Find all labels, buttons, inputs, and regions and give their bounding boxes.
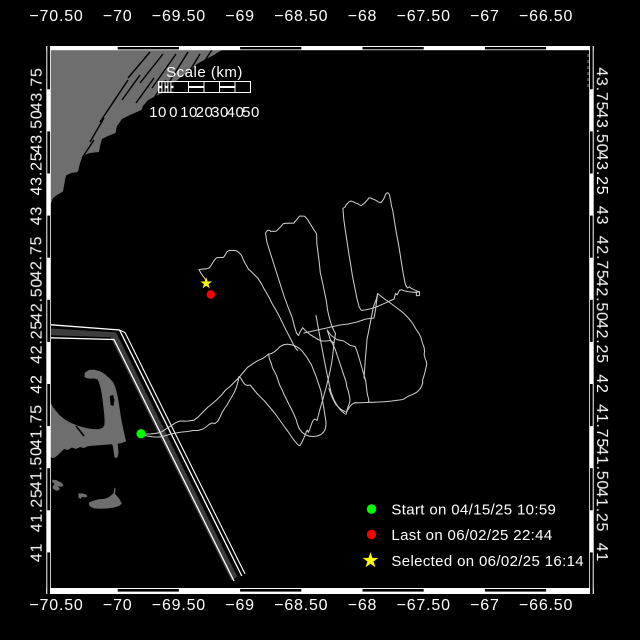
svg-text:41.75: 41.75	[29, 404, 46, 448]
svg-text:10: 10	[149, 104, 167, 121]
svg-text:0: 0	[169, 104, 178, 121]
svg-text:42.25: 42.25	[29, 320, 46, 364]
svg-text:43.75: 43.75	[29, 67, 46, 111]
svg-text:41: 41	[29, 543, 46, 562]
svg-text:−68.50: −68.50	[274, 8, 328, 25]
svg-text:41.25: 41.25	[593, 488, 610, 532]
svg-text:41: 41	[593, 543, 610, 562]
svg-text:42.75: 42.75	[593, 236, 610, 280]
svg-text:43.50: 43.50	[593, 109, 610, 153]
svg-text:Last on 06/02/25 22:44: Last on 06/02/25 22:44	[391, 527, 552, 544]
svg-text:43.25: 43.25	[593, 151, 610, 195]
svg-text:−69: −69	[225, 8, 255, 25]
svg-text:−68.50: −68.50	[274, 597, 328, 614]
svg-text:42: 42	[593, 374, 610, 393]
svg-text:50: 50	[242, 104, 260, 121]
svg-text:42.50: 42.50	[593, 278, 610, 322]
svg-text:−68: −68	[348, 8, 378, 25]
svg-text:43.25: 43.25	[29, 151, 46, 195]
svg-text:−67: −67	[470, 597, 500, 614]
svg-text:−67.50: −67.50	[397, 8, 451, 25]
svg-text:−69.50: −69.50	[152, 597, 206, 614]
svg-text:43: 43	[29, 206, 46, 225]
svg-text:41.25: 41.25	[29, 488, 46, 532]
svg-text:43.75: 43.75	[593, 67, 610, 111]
svg-text:Start on 04/15/25 10:59: Start on 04/15/25 10:59	[391, 502, 556, 519]
svg-text:−67: −67	[470, 8, 500, 25]
svg-text:43: 43	[593, 206, 610, 225]
svg-text:41.75: 41.75	[593, 404, 610, 448]
svg-text:−67.50: −67.50	[397, 597, 451, 614]
svg-text:−66.50: −66.50	[519, 597, 573, 614]
svg-text:−70.50: −70.50	[29, 8, 83, 25]
svg-text:42.50: 42.50	[29, 278, 46, 322]
svg-text:−68: −68	[348, 597, 378, 614]
svg-text:Selected on 06/02/25 16:14: Selected on 06/02/25 16:14	[391, 553, 584, 570]
svg-text:43.50: 43.50	[29, 109, 46, 153]
svg-text:−66.50: −66.50	[519, 8, 573, 25]
svg-text:42.75: 42.75	[29, 236, 46, 280]
svg-text:Scale (km): Scale (km)	[166, 64, 243, 81]
svg-text:−70: −70	[103, 8, 133, 25]
svg-text:41.50: 41.50	[29, 446, 46, 490]
svg-text:42: 42	[29, 374, 46, 393]
svg-text:41.50: 41.50	[593, 446, 610, 490]
svg-text:42.25: 42.25	[593, 320, 610, 364]
svg-text:−70: −70	[103, 597, 133, 614]
svg-text:−70.50: −70.50	[29, 597, 83, 614]
svg-text:−69.50: −69.50	[152, 8, 206, 25]
svg-text:−69: −69	[225, 597, 255, 614]
